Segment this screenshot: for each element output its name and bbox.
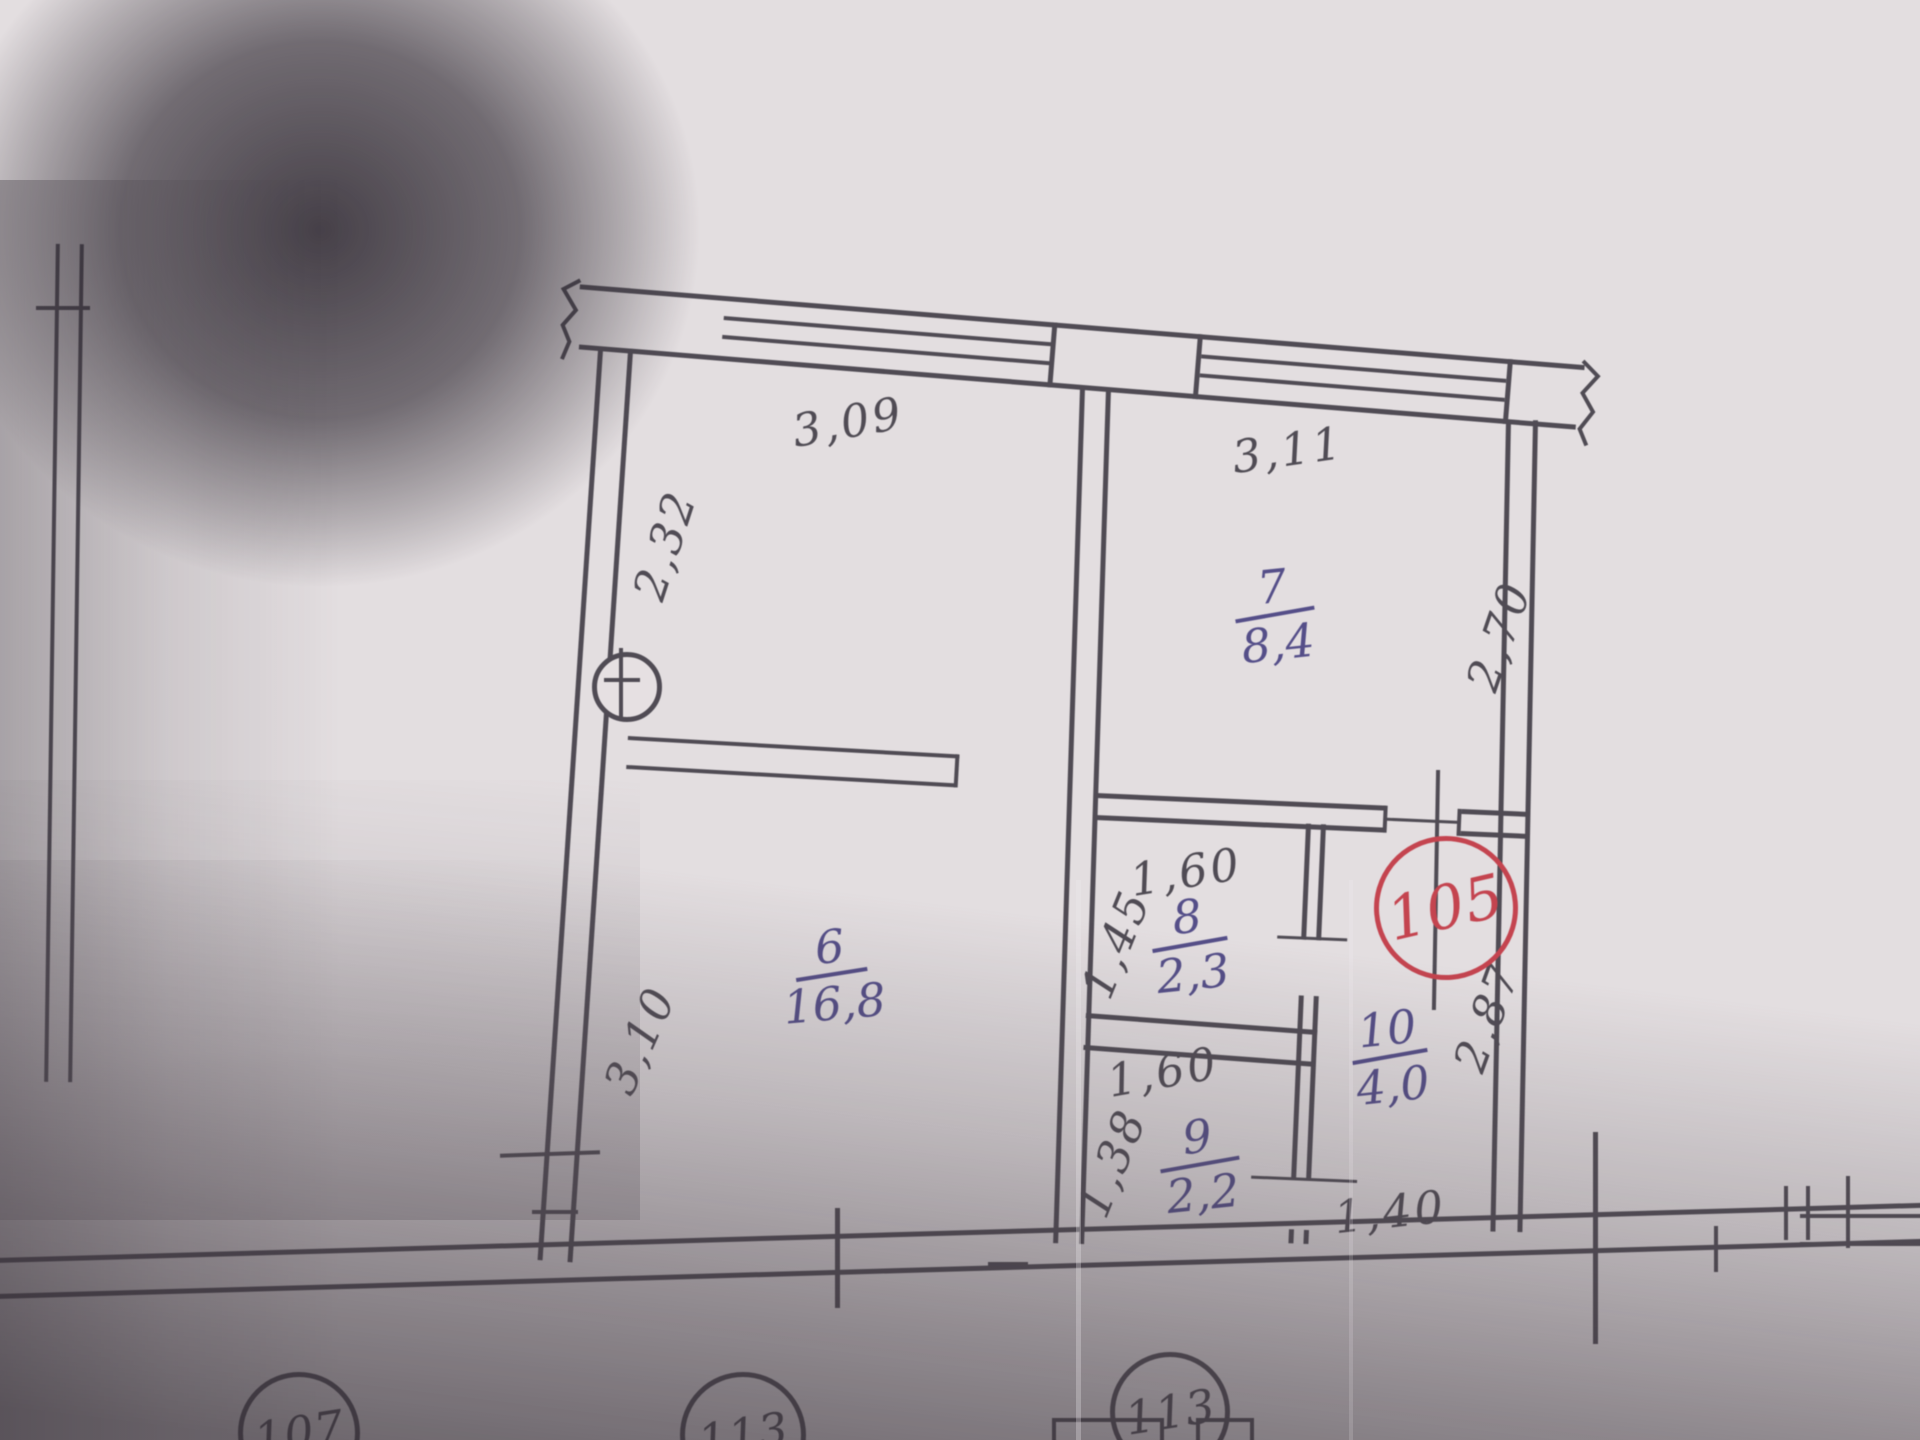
dimension-tick [835, 1208, 840, 1308]
room-number: 9 [1155, 1110, 1239, 1164]
dim-room6-top: 3,09 [788, 386, 908, 458]
dim-room7-top: 3,11 [1229, 416, 1347, 484]
door-threshold [1385, 818, 1459, 824]
wall-break-left [553, 275, 594, 367]
riser-symbol [592, 652, 662, 722]
partition-line [628, 736, 960, 759]
floorplan-drawing: 3,09 3,11 2,32 3,10 2,70 2,87 1,60 1,45 … [0, 0, 1920, 1440]
room9-label: 9 2,2 [1155, 1110, 1245, 1221]
room-area: 16,8 [781, 976, 887, 1031]
room6-partition [626, 736, 959, 788]
room7-label: 7 8,4 [1230, 560, 1320, 671]
room-number: 8 [1147, 890, 1227, 944]
bottom-exterior-wall [0, 1202, 1920, 1299]
wall-line [1096, 793, 1386, 811]
dimension-tick [36, 306, 90, 310]
wall-break-right [1566, 358, 1607, 450]
window-pier-edge [1047, 322, 1057, 387]
room-area: 8,4 [1236, 616, 1320, 670]
unit-circle-113a: 113 [680, 1372, 806, 1440]
unit-number: 113 [694, 1401, 792, 1440]
room6-label: 6 16,8 [776, 919, 887, 1031]
room10-label: 10 4,0 [1347, 1002, 1433, 1112]
lower-floor-stub [1196, 1418, 1254, 1440]
wall-line [1095, 815, 1385, 833]
room8-label: 8 2,3 [1147, 890, 1233, 1000]
room-number: 10 [1347, 1002, 1427, 1056]
window-2-end-edge [1503, 359, 1513, 424]
dimension-tick [1593, 1132, 1598, 1344]
neighbor-left-wall [44, 244, 84, 1082]
dim-room6-left: 3,10 [593, 978, 687, 1102]
unit-number: 107 [250, 1399, 348, 1440]
wall-segment [1291, 995, 1319, 1180]
riser-cross-horizontal [604, 678, 640, 682]
partition-end-cap [954, 754, 960, 787]
room-area: 2,2 [1161, 1166, 1245, 1220]
room-number: 7 [1230, 560, 1314, 614]
neighbor-wall-fragment [1800, 1214, 1920, 1246]
wall-segment [1301, 824, 1326, 941]
dim-left-upper: 2,32 [622, 483, 707, 606]
room-area: 2,3 [1153, 946, 1233, 1000]
lower-floor-stub [1052, 1418, 1164, 1440]
wall-line [1460, 831, 1526, 839]
floorplan-photo: 3,09 3,11 2,32 3,10 2,70 2,87 1,60 1,45 … [0, 0, 1920, 1440]
partition-line [626, 765, 956, 787]
room-area: 4,0 [1353, 1058, 1433, 1112]
dimension-tick [1846, 1176, 1850, 1248]
dimension-tick [1714, 1226, 1718, 1272]
door-threshold [1277, 935, 1347, 941]
window-pier-edge [1193, 334, 1203, 399]
left-exterior-wall [538, 350, 633, 1262]
unit-circle-107: 107 [238, 1372, 360, 1440]
riser-cross-vertical [619, 648, 623, 718]
dimension-tick [532, 1210, 578, 1214]
room-number: 6 [776, 919, 882, 974]
apartment-number: 105 [1381, 861, 1511, 956]
dimension-tick [988, 1262, 1028, 1266]
